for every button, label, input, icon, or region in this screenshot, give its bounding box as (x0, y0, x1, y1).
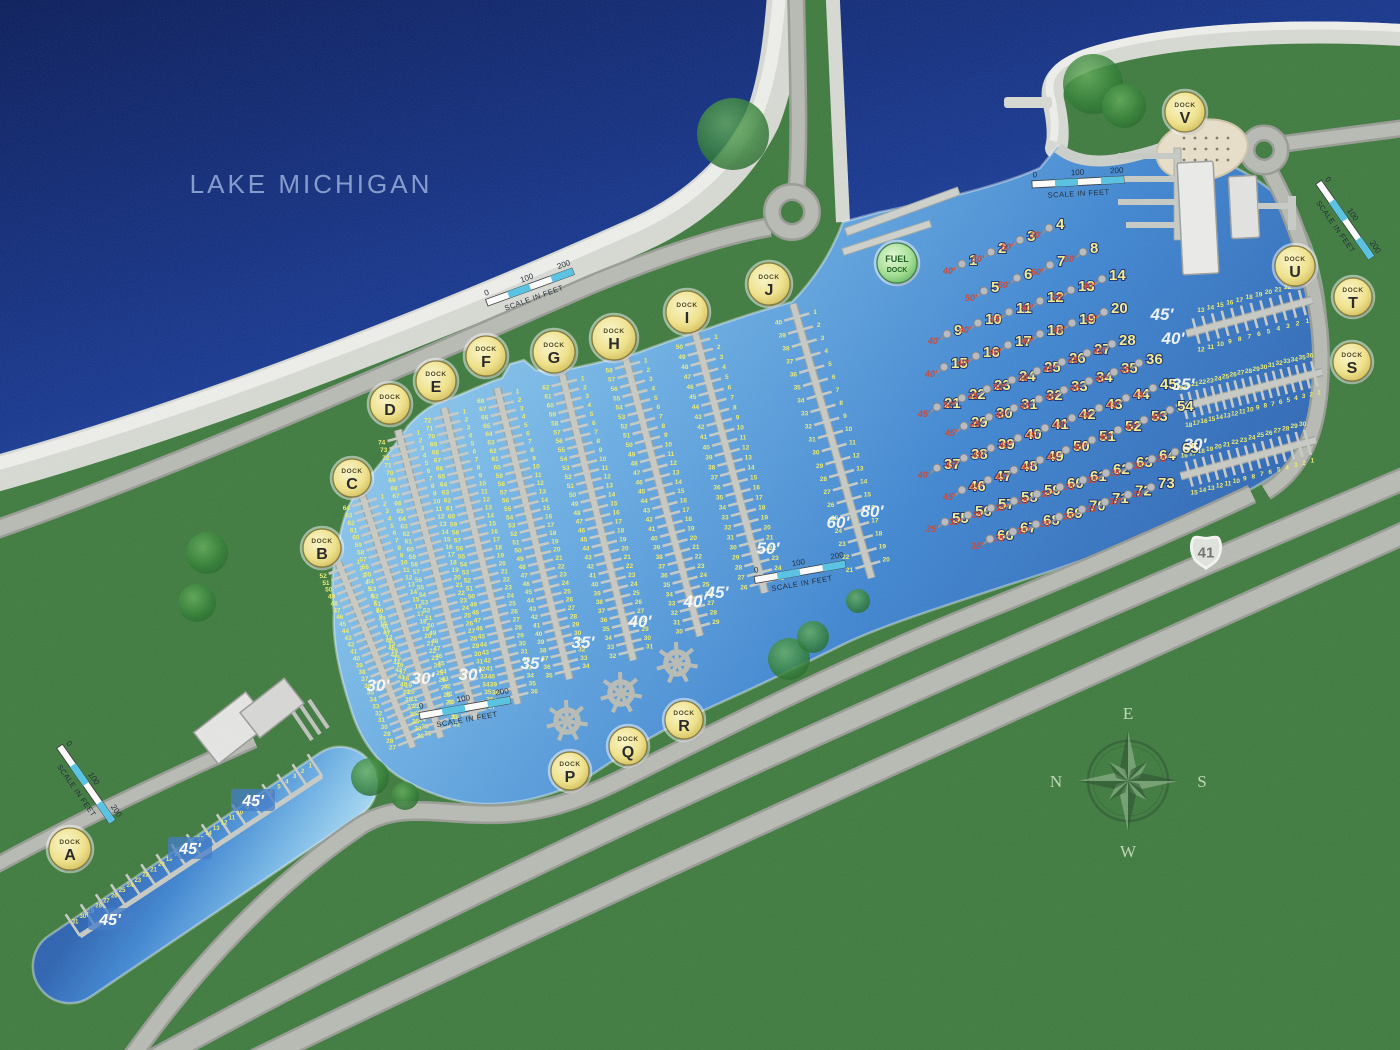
map-canvas: 1522513504495486477468459441043114212411… (0, 0, 1400, 1050)
marina-map: 1522513504495486477468459441043114212411… (0, 0, 1400, 1050)
texture-overlay (0, 0, 1400, 1050)
